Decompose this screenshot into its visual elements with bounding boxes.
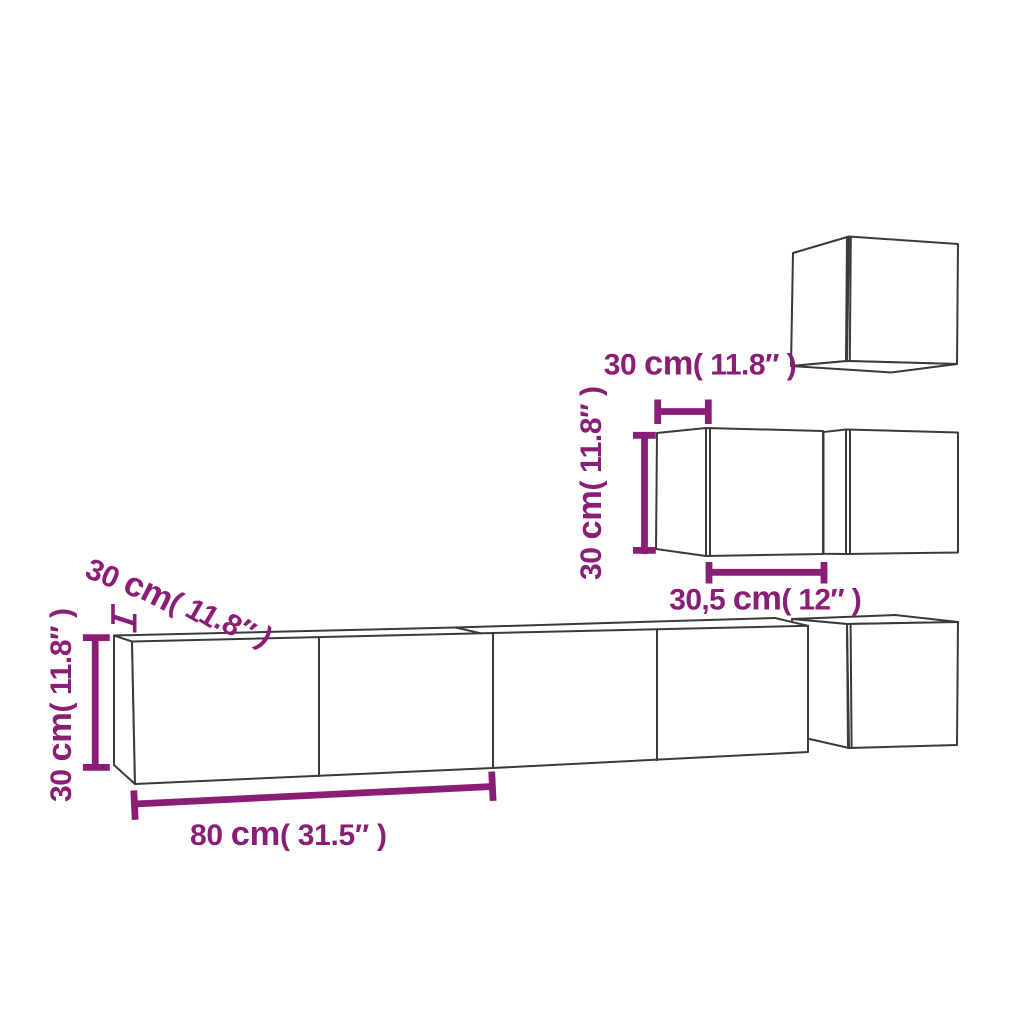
svg-text:30,5 cm( 12″ ): 30,5 cm( 12″ ): [669, 579, 862, 617]
svg-text:30 cm( 11.8″ ): 30 cm( 11.8″ ): [41, 608, 79, 802]
svg-text:30 cm( 11.8″ ): 30 cm( 11.8″ ): [571, 386, 609, 580]
svg-text:80 cm( 31.5″ ): 80 cm( 31.5″ ): [190, 815, 387, 853]
svg-text:30 cm( 11.8″ ): 30 cm( 11.8″ ): [604, 345, 797, 383]
